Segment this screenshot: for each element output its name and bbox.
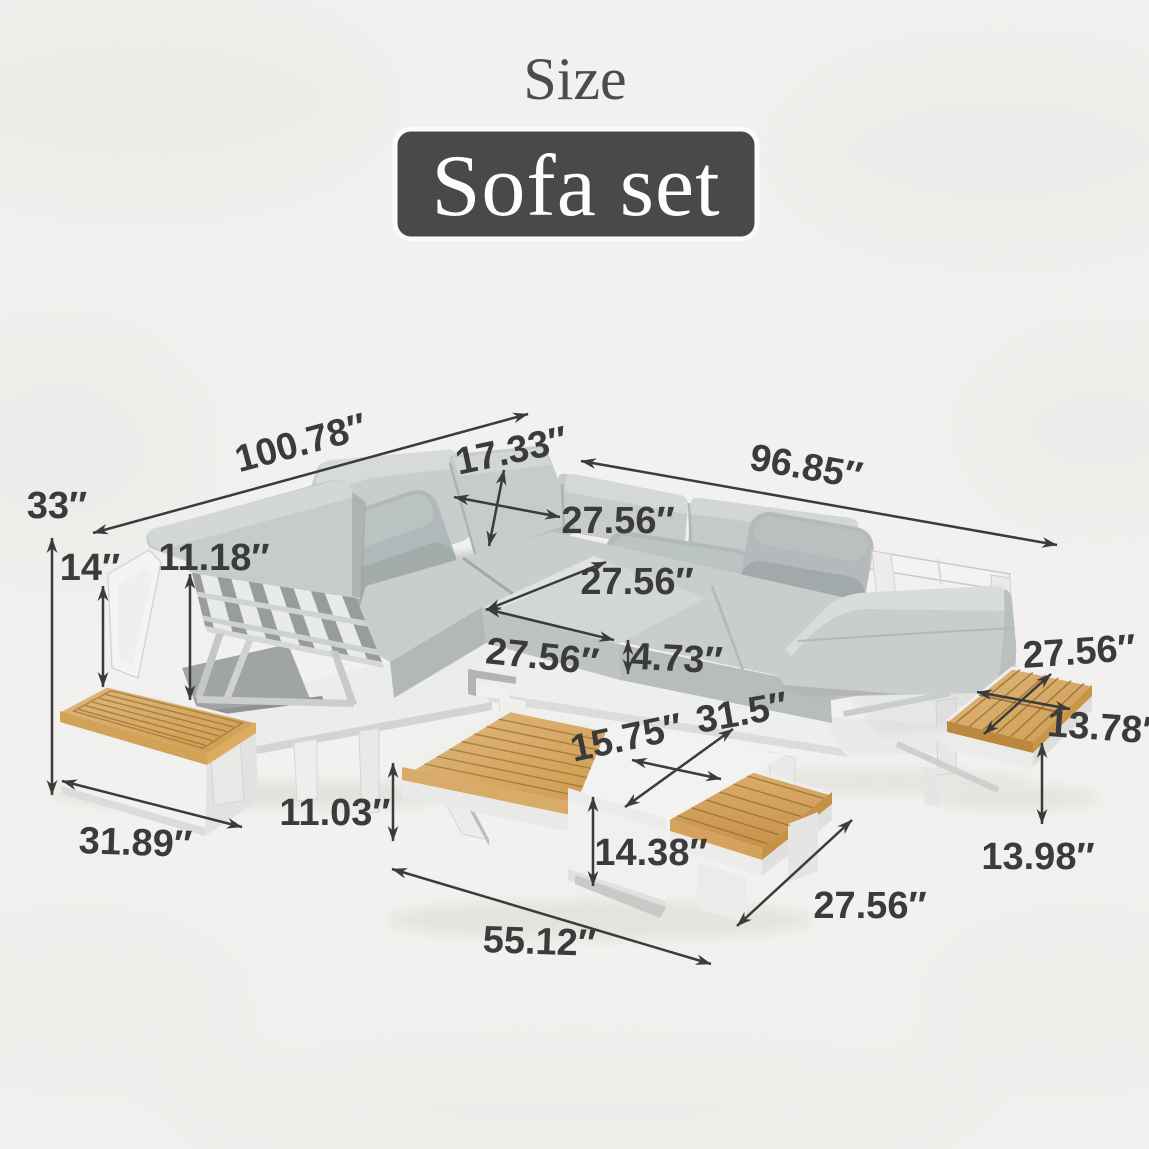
svg-text:Sofa set: Sofa set [431,138,720,235]
svg-text:27.56″: 27.56″ [813,885,926,927]
svg-text:4.73″: 4.73″ [630,636,724,683]
svg-text:31.89″: 31.89″ [78,820,193,866]
svg-text:27.56″: 27.56″ [580,561,693,603]
svg-text:13.98″: 13.98″ [981,836,1094,878]
svg-text:27.56″: 27.56″ [561,500,674,542]
svg-text:55.12″: 55.12″ [482,919,597,965]
svg-text:Size: Size [523,46,626,112]
svg-text:13.78″: 13.78″ [1046,703,1149,753]
svg-text:27.56″: 27.56″ [1021,627,1137,677]
svg-text:33″: 33″ [27,485,87,527]
svg-text:11.03″: 11.03″ [279,792,390,834]
svg-text:14″: 14″ [60,547,120,589]
svg-text:14.38″: 14.38″ [594,832,707,874]
svg-text:11.18″: 11.18″ [158,537,269,579]
